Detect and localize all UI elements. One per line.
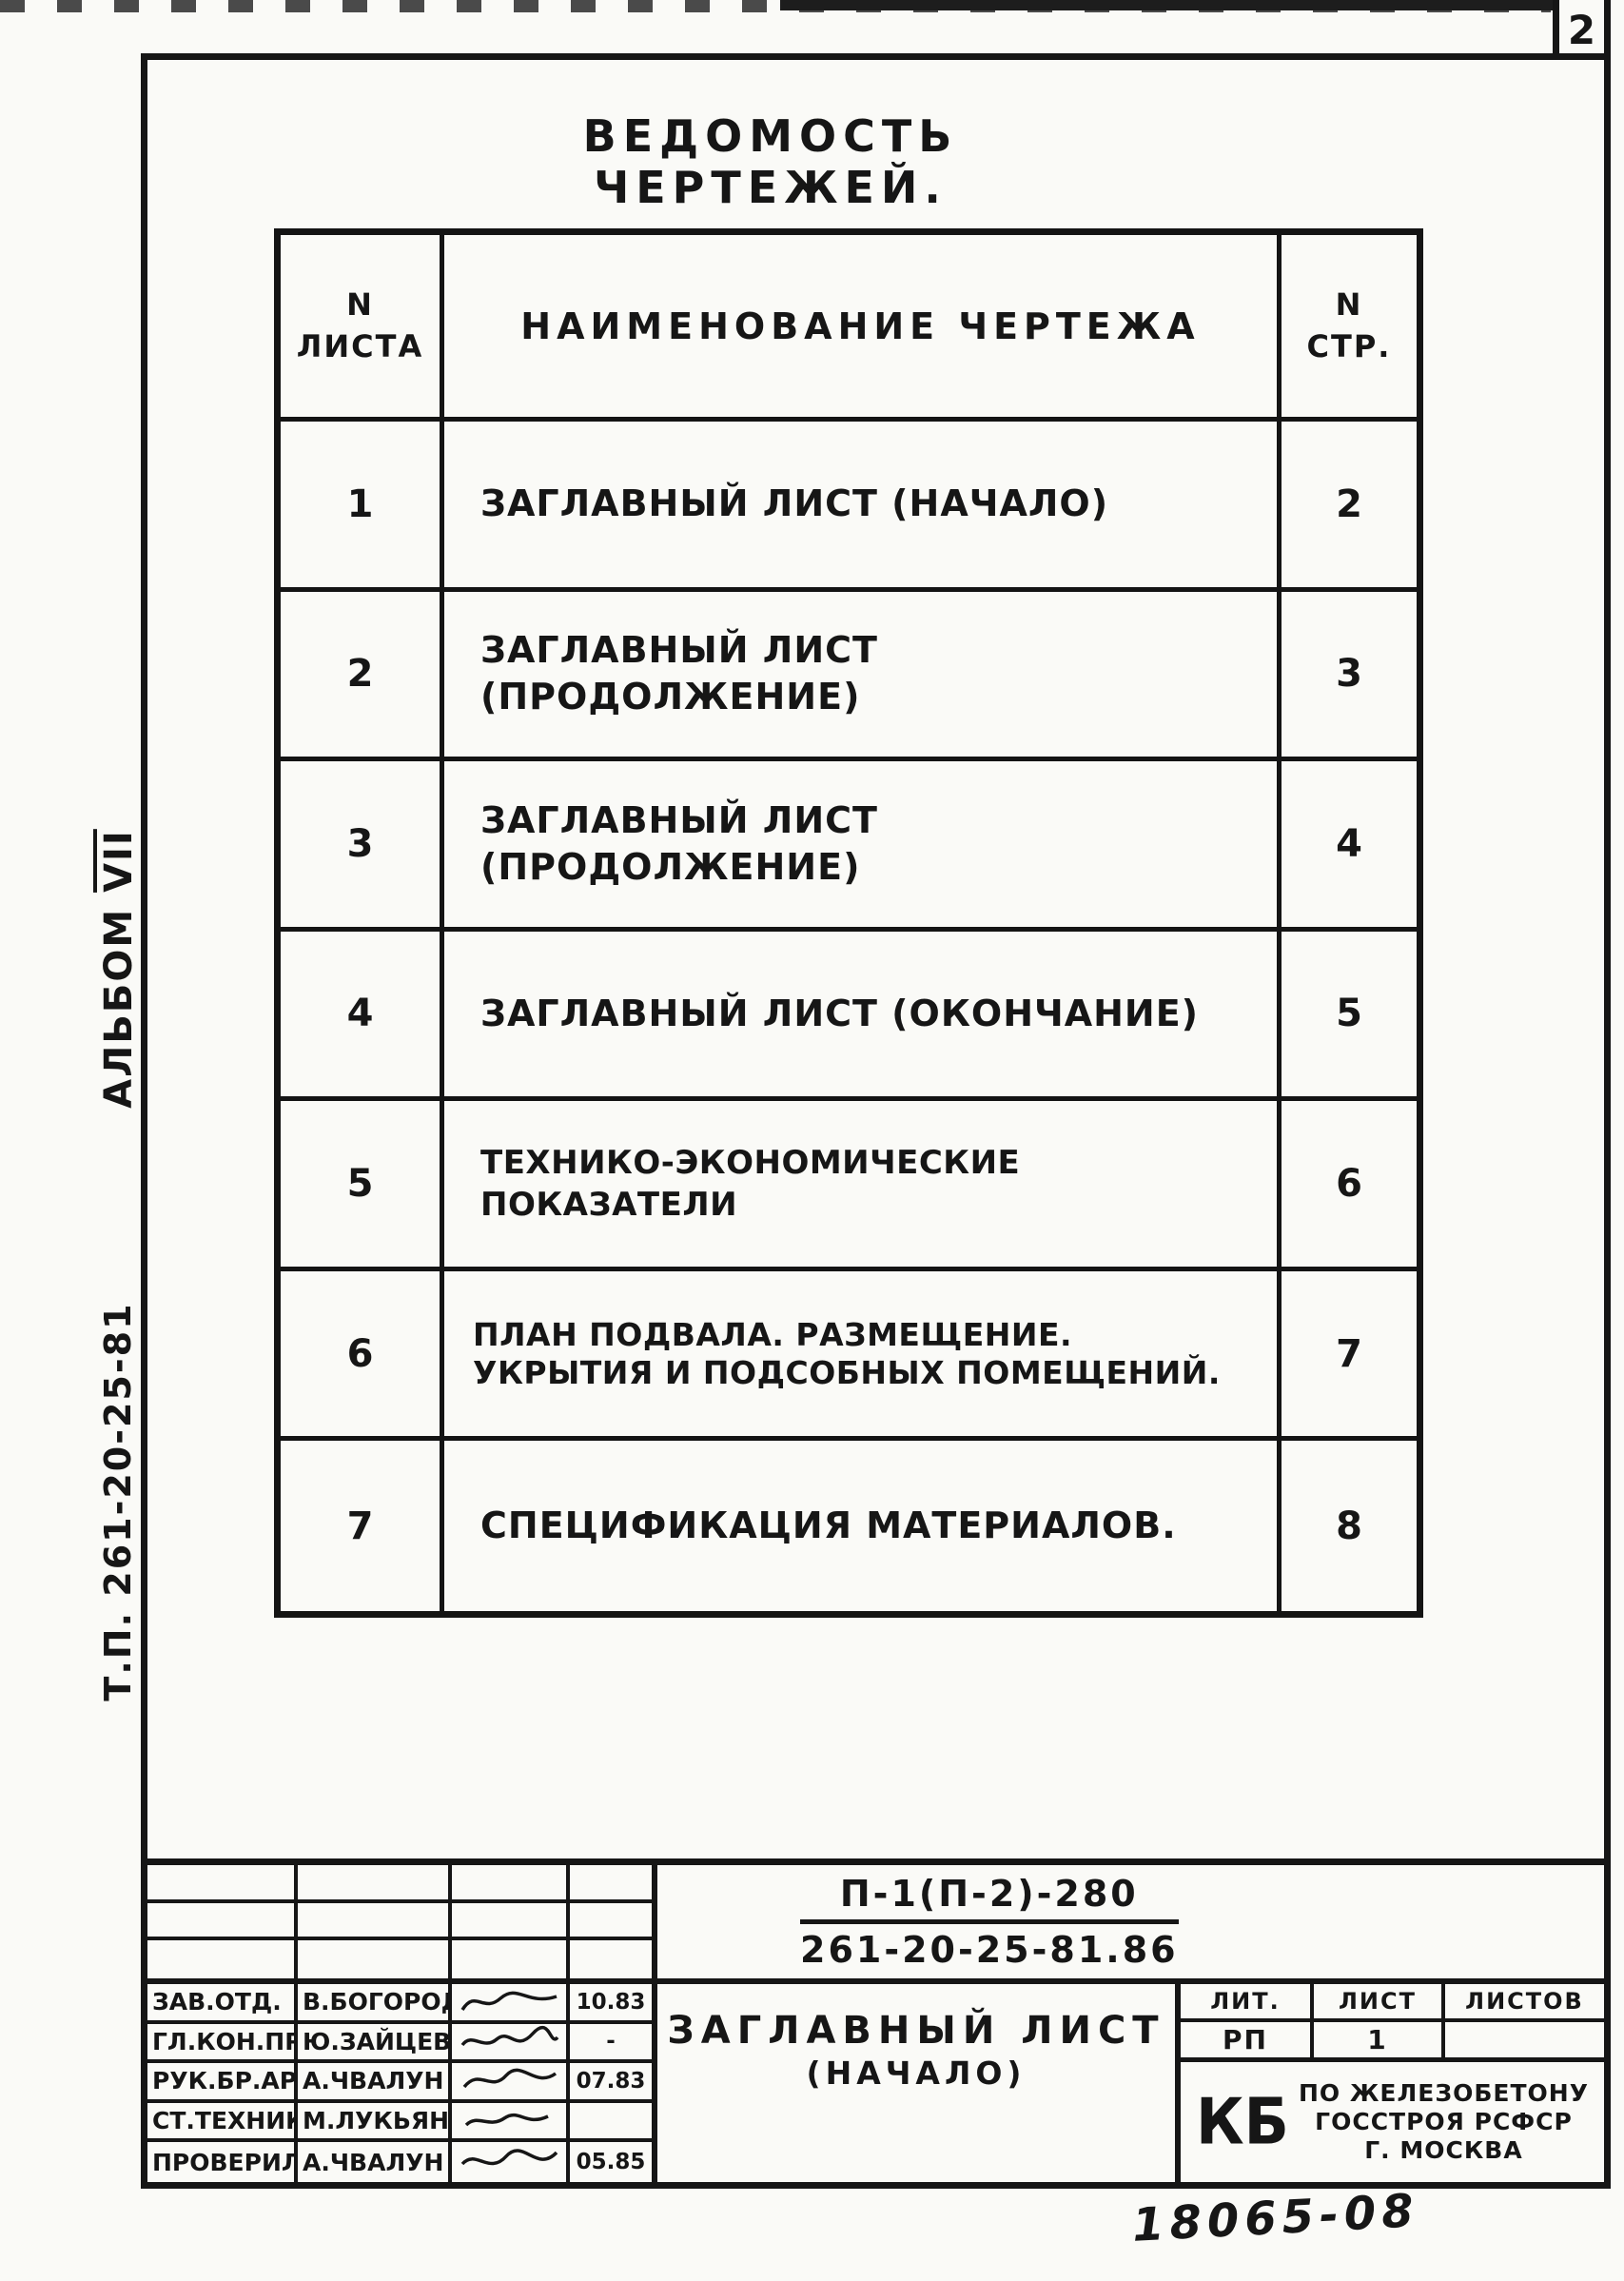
signature-role: Рук.бр.Арх	[147, 2063, 298, 2103]
document-code: П-1(П-2)-280 261-20-25-81.86	[800, 1873, 1179, 1971]
table-row-sheet: 2	[281, 592, 444, 762]
revision-grid-empty	[147, 1865, 652, 1984]
signature-name: А.Чвалун	[298, 2063, 452, 2103]
page-number-cell: 2	[1553, 0, 1611, 60]
title-block-signatures-section: Зав.отд. В.Богородская 10.83 Гл.кон.пр. …	[147, 1865, 657, 2182]
organization-logo: КБ	[1196, 2091, 1289, 2154]
signature-role: Проверил	[147, 2142, 298, 2182]
table-row-sheet: 7	[281, 1441, 444, 1611]
table-row-name: План подвала. Размещение. укрытия и подс…	[444, 1271, 1282, 1442]
organization-block: КБ по железобетону Госстроя РСФСР г. Мос…	[1181, 2062, 1604, 2182]
drawing-title-line1: Заглавный лист	[657, 2009, 1175, 2053]
document-code-top: П-1(П-2)-280	[800, 1873, 1179, 1924]
album-numeral: VII	[97, 829, 141, 893]
stage-value-lit: РП	[1181, 2022, 1314, 2062]
drawing-title-line2: (начало)	[657, 2055, 1175, 2092]
stage-value-listov	[1445, 2022, 1604, 2062]
signature-scribble	[452, 2103, 570, 2143]
handwritten-inventory-number: 18065-08	[1131, 2184, 1420, 2252]
signature-name: В.Богородская	[298, 1984, 452, 2024]
title-block: Зав.отд. В.Богородская 10.83 Гл.кон.пр. …	[141, 1858, 1611, 2189]
table-row-name: Заглавный лист (окончание)	[444, 932, 1282, 1102]
signature-scribble	[452, 2063, 570, 2103]
table-row-name: Технико-экономические показатели	[444, 1101, 1282, 1271]
col-header-sheet: N листа	[281, 235, 444, 422]
document-code-cell: П-1(П-2)-280 261-20-25-81.86	[657, 1865, 1604, 1984]
signature-role: Зав.отд.	[147, 1984, 298, 2024]
drawing-title-cell: Заглавный лист (начало)	[657, 1984, 1181, 2182]
table-row-name: Заглавный лист (продолжение)	[444, 592, 1282, 762]
table-row-sheet: 4	[281, 932, 444, 1102]
signature-rows: Зав.отд. В.Богородская 10.83 Гл.кон.пр. …	[147, 1984, 652, 2182]
table-row-page: 2	[1282, 422, 1417, 592]
stage-header-list: Лист	[1314, 1984, 1445, 2022]
table-row-page: 4	[1282, 761, 1417, 932]
signature-date: 07.83	[570, 2063, 652, 2103]
table-row-sheet: 5	[281, 1101, 444, 1271]
signature-scribble	[452, 1984, 570, 2024]
page-number: 2	[1568, 7, 1595, 53]
stage-header-listov: Листов	[1445, 1984, 1604, 2022]
signature-scribble	[452, 2024, 570, 2064]
table-row-page: 3	[1282, 592, 1417, 762]
table-row-sheet: 3	[281, 761, 444, 932]
col-header-name: Наименование чертежа	[444, 235, 1282, 422]
page-title: Ведомость чертежей.	[400, 110, 1142, 213]
stage-value-list: 1	[1314, 2022, 1445, 2062]
signature-date: -	[570, 2024, 652, 2064]
stage-and-org-section: Лит. Лист Листов РП 1 КБ по железобетону…	[1181, 1984, 1604, 2182]
table-row-name: Заглавный лист (продолжение)	[444, 761, 1282, 932]
col-header-page: N стр.	[1282, 235, 1417, 422]
signature-name: Ю.Зайцев	[298, 2024, 452, 2064]
drawing-list-table: N листа Наименование чертежа N стр. 1 За…	[274, 228, 1423, 1618]
signature-name: А.Чвалун	[298, 2142, 452, 2182]
table-row-sheet: 1	[281, 422, 444, 592]
table-row-page: 8	[1282, 1441, 1417, 1611]
signature-name: М.Лукьянов	[298, 2103, 452, 2143]
table-row-page: 7	[1282, 1271, 1417, 1442]
margin-label-album: Альбом VII	[97, 816, 147, 1121]
signature-date: 10.83	[570, 1984, 652, 2024]
table-row-page: 6	[1282, 1101, 1417, 1271]
table-row-name: Спецификация материалов.	[444, 1441, 1282, 1611]
organization-name: по железобетону Госстроя РСФСР г. Москва	[1299, 2079, 1589, 2165]
signature-role: Гл.кон.пр.	[147, 2024, 298, 2064]
table-row-sheet: 6	[281, 1271, 444, 1442]
scan-artifact-bar	[780, 0, 1556, 10]
stage-header-lit: Лит.	[1181, 1984, 1314, 2022]
signature-scribble	[452, 2142, 570, 2182]
table-row-name: Заглавный лист (начало)	[444, 422, 1282, 592]
document-code-bottom: 261-20-25-81.86	[800, 1924, 1179, 1971]
table-row-page: 5	[1282, 932, 1417, 1102]
signature-date	[570, 2103, 652, 2143]
signature-role: Ст.техник	[147, 2103, 298, 2143]
title-block-main-section: П-1(П-2)-280 261-20-25-81.86 Заглавный л…	[657, 1865, 1604, 2182]
signature-date: 05.85	[570, 2142, 652, 2182]
margin-label-project-code: т.п. 261-20-25-81	[97, 1283, 147, 1721]
